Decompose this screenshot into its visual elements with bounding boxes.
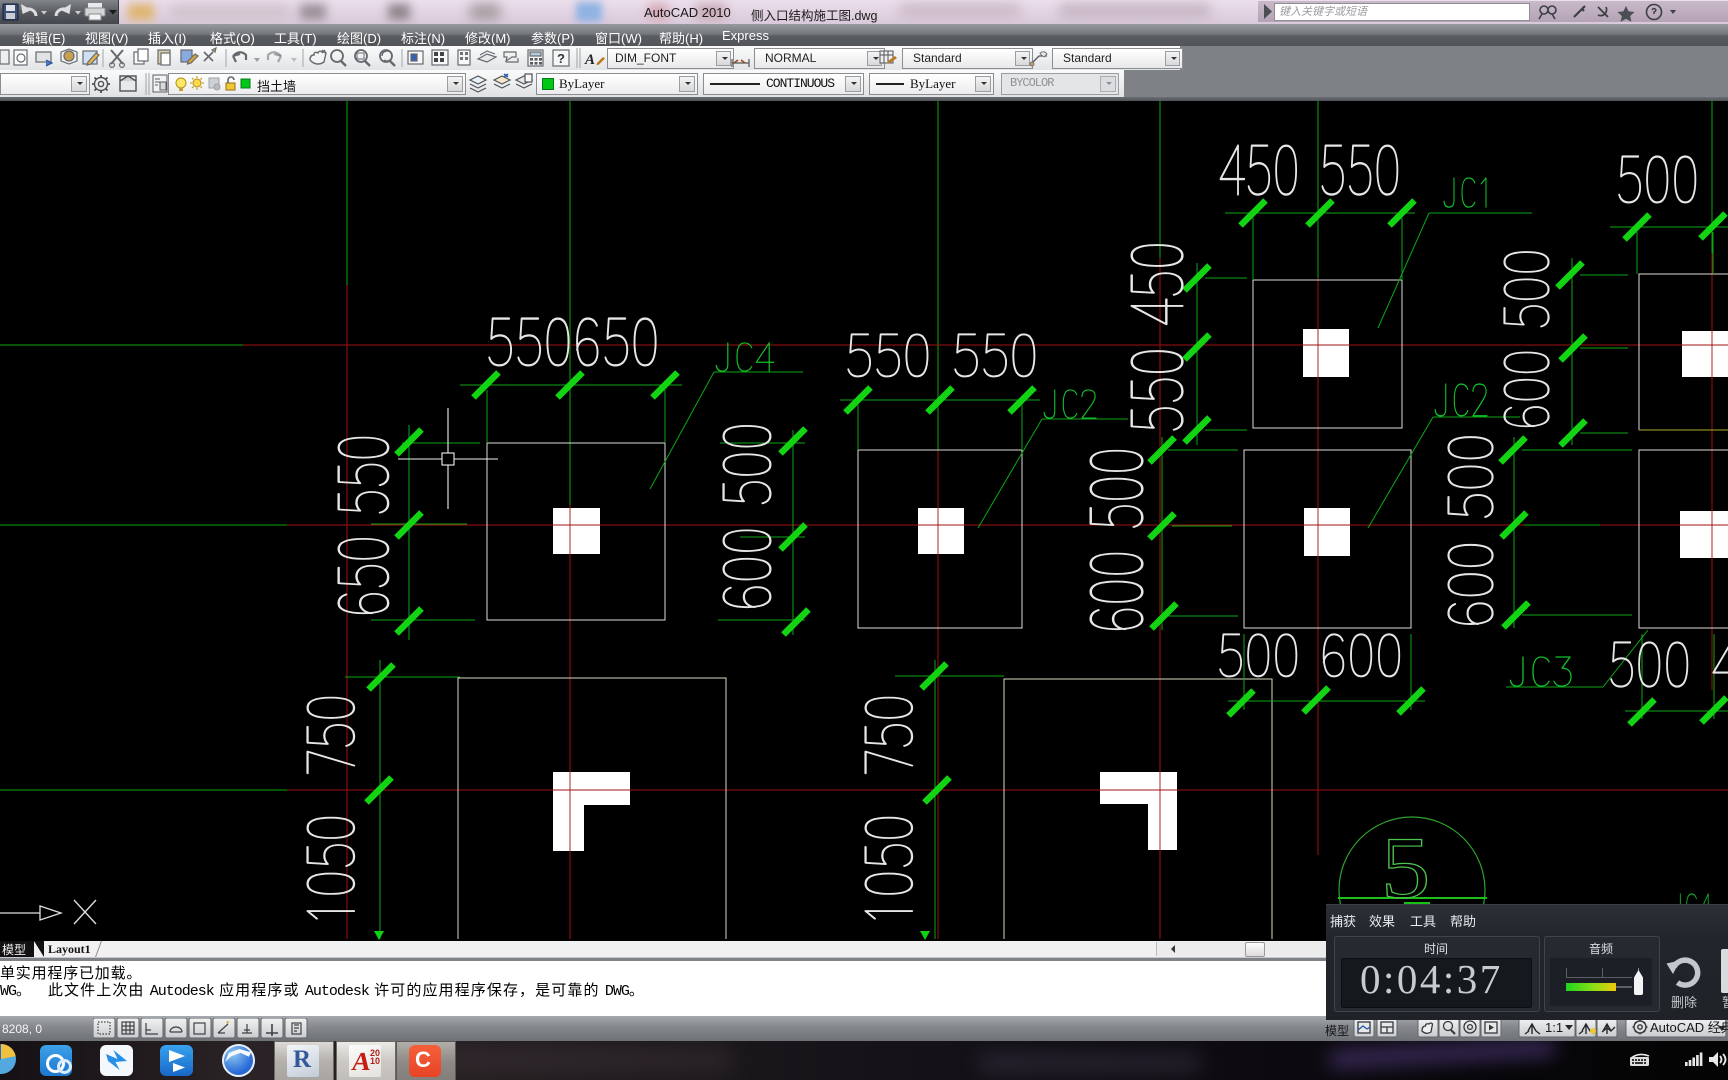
svg-text:5: 5 xyxy=(1381,820,1430,917)
svg-text:AutoCAD 经典: AutoCAD 经典 xyxy=(1650,1020,1728,1035)
svg-text:1:1: 1:1 xyxy=(1545,1020,1563,1035)
svg-text:A: A xyxy=(584,52,595,68)
svg-text:?: ? xyxy=(557,51,565,66)
